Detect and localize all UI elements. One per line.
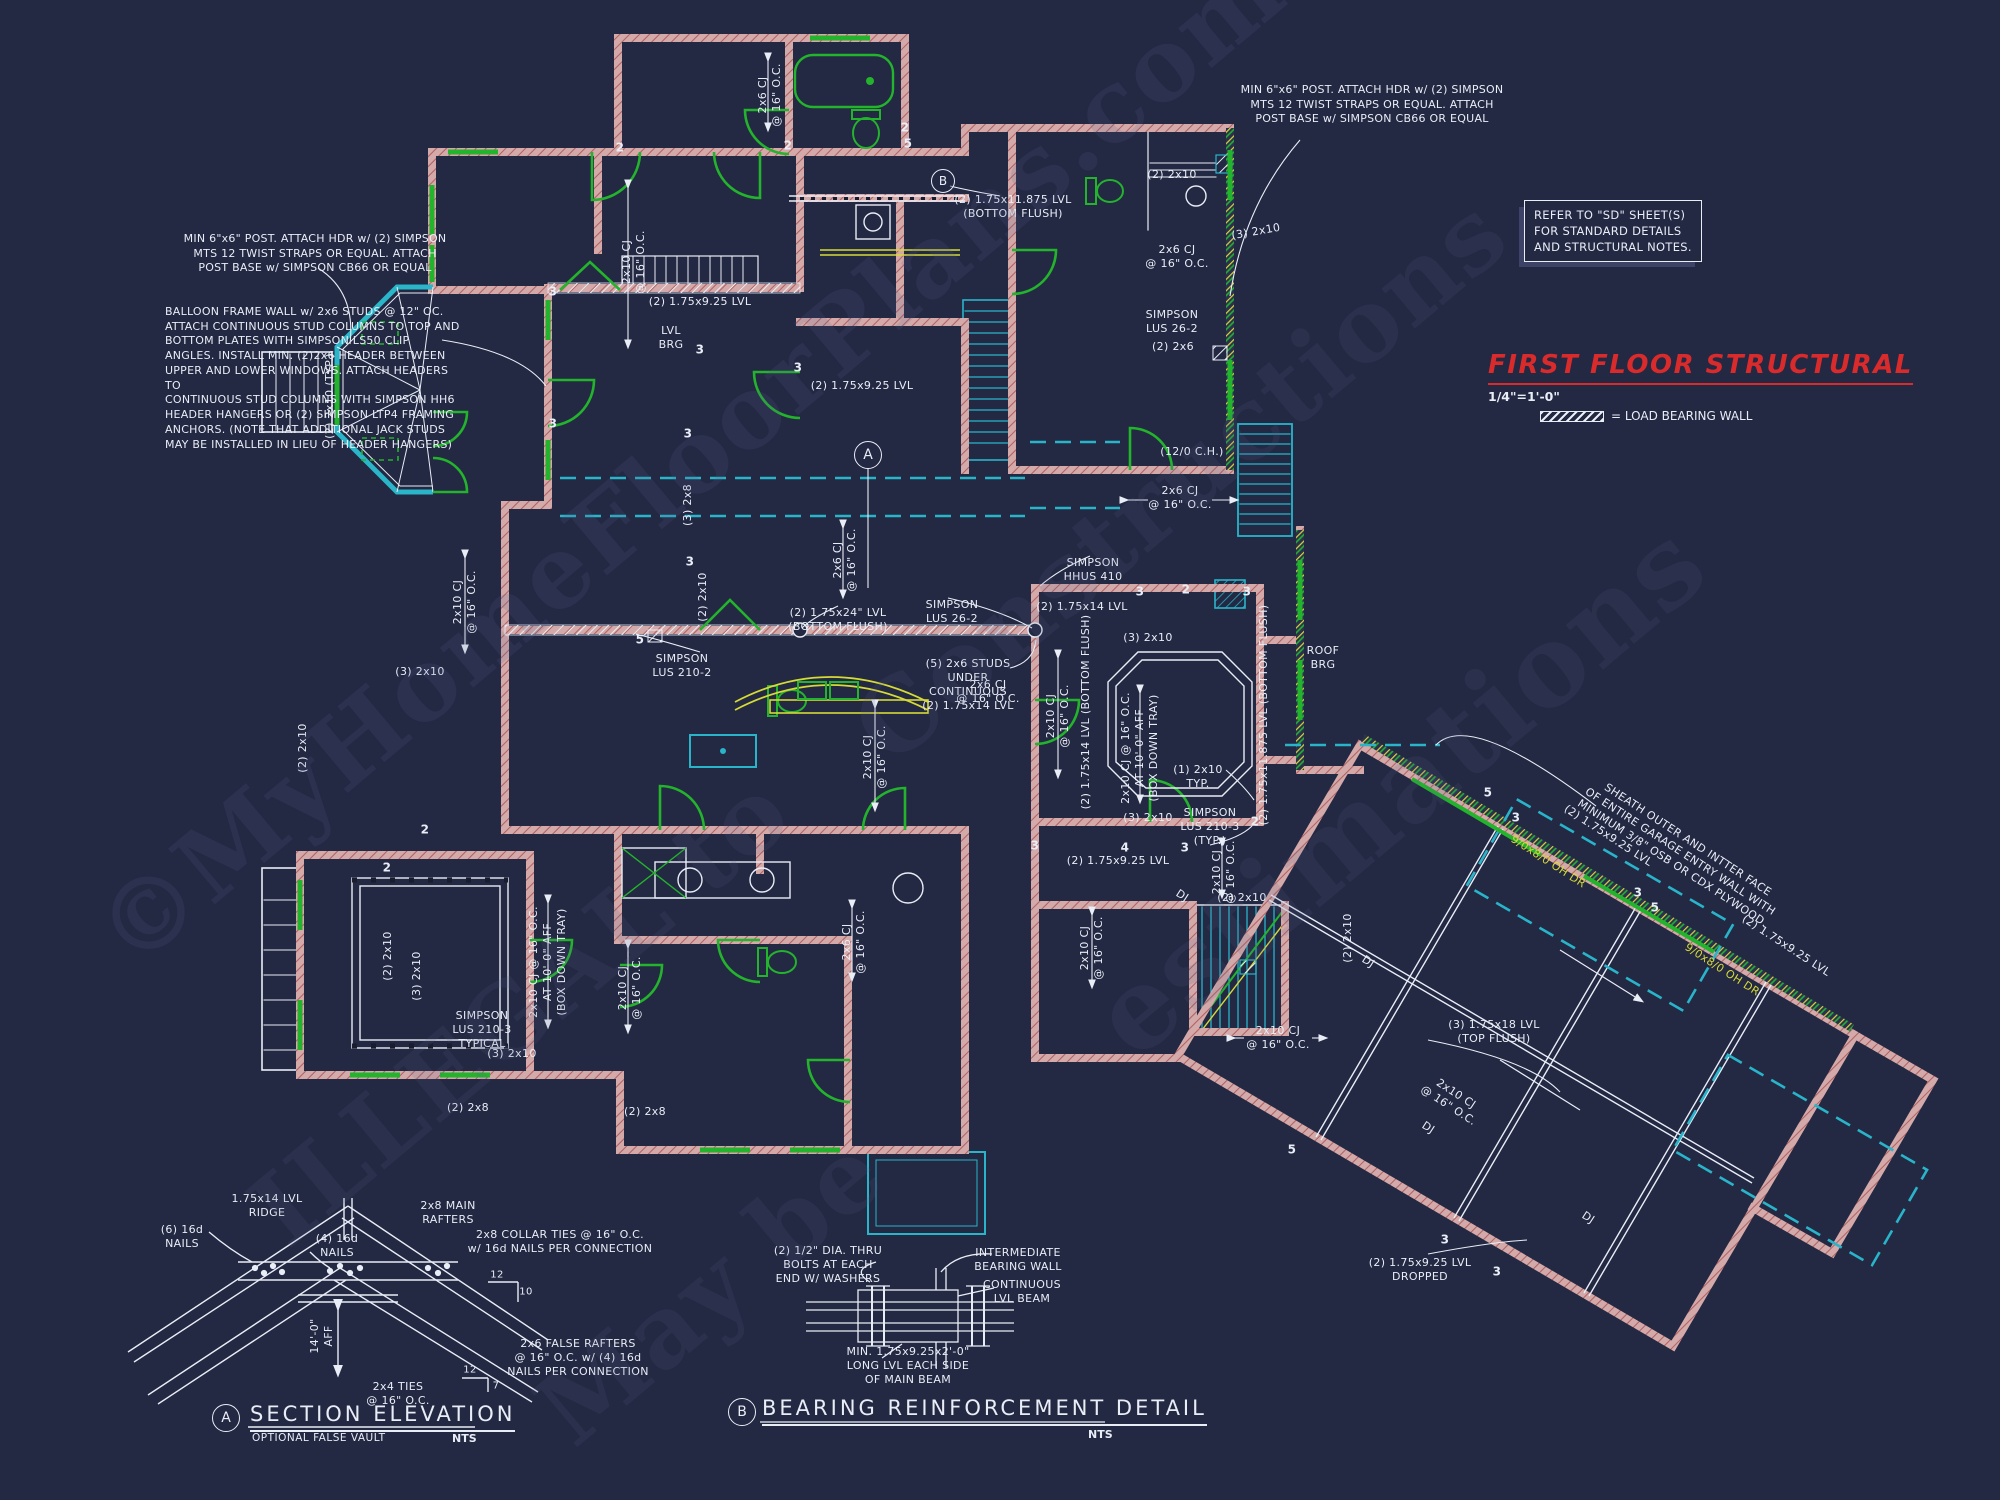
ceiling-dash-layer [560,442,1927,1265]
balloon-frame-note: BALLOON FRAME WALL w/ 2x6 STUDS @ 12" OC… [165,305,465,452]
post-note-right: MIN 6"x6" POST. ATTACH HDR w/ (2) SIMPSO… [1222,83,1522,127]
sd-reference-note-box: REFER TO "SD" SHEET(S) FOR STANDARD DETA… [1524,200,1702,262]
sheet-title: FIRST FLOOR STRUCTURAL [1488,350,1913,385]
porches-and-stairs-layer [262,128,1292,1234]
post-note-left: MIN 6"x6" POST. ATTACH HDR w/ (2) SIMPSO… [165,232,465,276]
section-elevation-detail-drawing [128,1198,548,1427]
detail-a-tag: A [212,1404,240,1432]
detail-a-scale: NTS [452,1432,477,1445]
beam-hatch-layer [505,128,1852,1028]
title-block: FIRST FLOOR STRUCTURAL 1/4"=1'-0" = LOAD… [1488,350,1913,423]
legend-label: = LOAD BEARING WALL [1611,409,1752,423]
detail-b-scale: NTS [1088,1428,1113,1441]
doors-layer [433,110,1192,1102]
garage-joists-layer [1269,826,1771,1296]
callout-a: A [854,441,882,469]
sheet-scale: 1/4"=1'-0" [1488,389,1913,404]
detail-b-tag: B [728,1398,756,1426]
detail-a-title: SECTION ELEVATION [250,1402,515,1432]
detail-b-title: BEARING REINFORCEMENT DETAIL [762,1396,1207,1426]
load-bearing-hatch-swatch [1540,411,1604,422]
blueprint-sheet: { "colors": { "background": "#232843", "… [0,0,2000,1500]
windows-layer [300,38,1714,1150]
callout-b: B [931,169,955,193]
detail-a-subtitle: OPTIONAL FALSE VAULT [252,1432,386,1444]
tray-ceiling-layer [352,652,1252,1048]
